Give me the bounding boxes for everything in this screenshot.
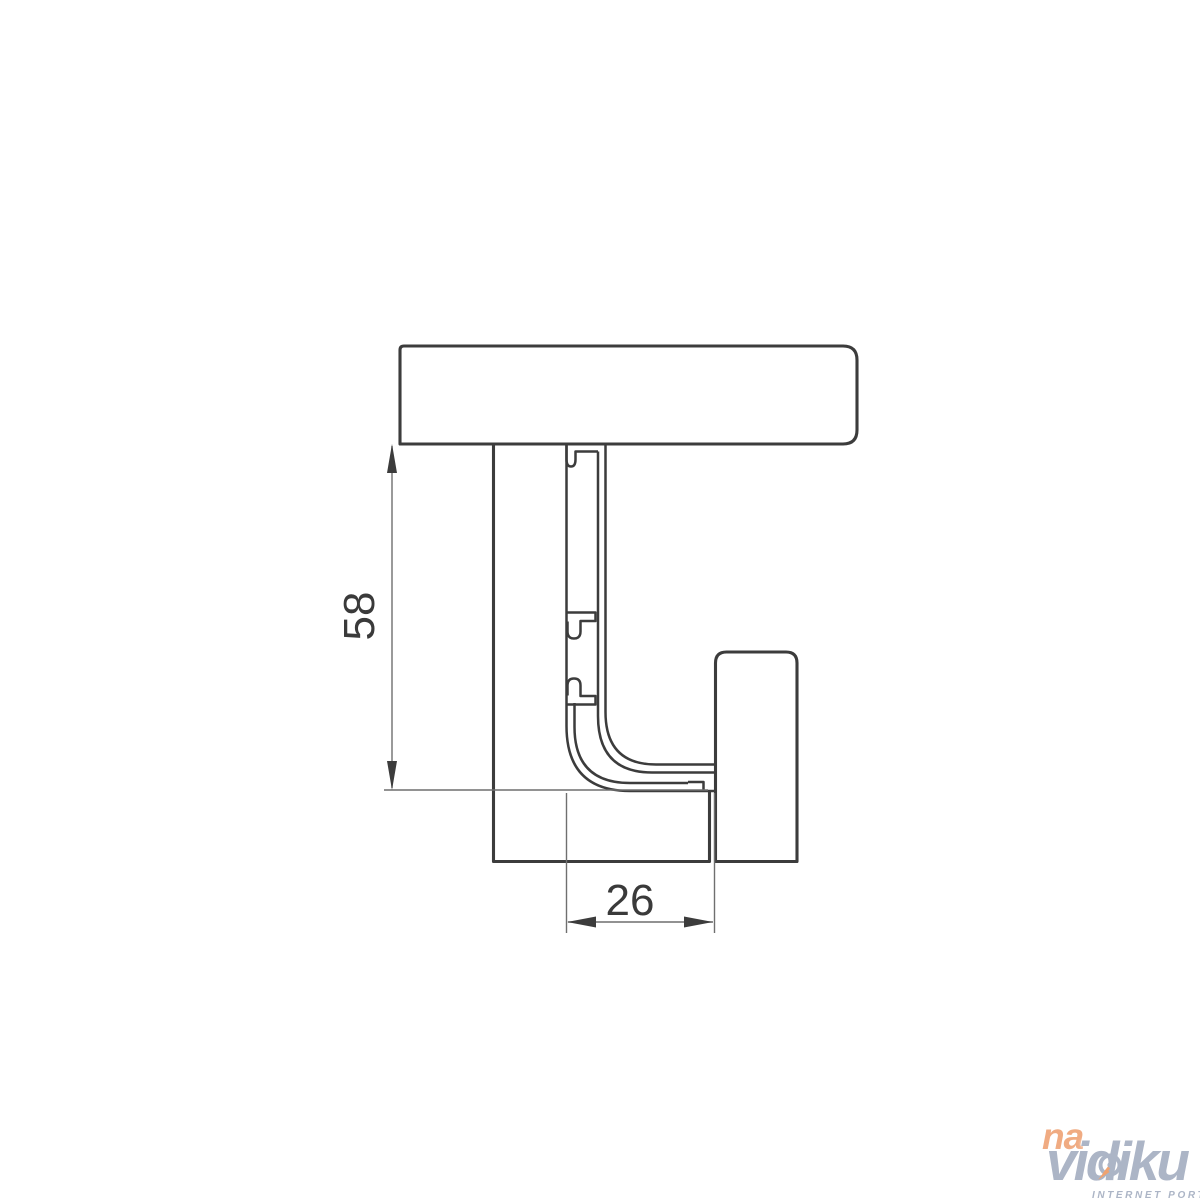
door-panel-outline [716, 652, 798, 862]
drawing-canvas: 58 26 [0, 0, 1200, 1200]
technical-drawing-svg: 58 26 [0, 0, 1200, 1200]
width-arrow-right [684, 917, 713, 928]
drawing-objects [400, 346, 857, 862]
profile-clip-lower [567, 679, 596, 705]
profile-top-pin [567, 444, 599, 467]
profile-right-wall-outer [606, 444, 715, 765]
dimension-height-58: 58 [335, 444, 708, 790]
height-dimension-value: 58 [335, 592, 384, 641]
profile-outer-wall [567, 444, 715, 791]
profile-clip-middle [567, 613, 596, 639]
countertop-outline [400, 346, 857, 444]
profile-arm-lip [688, 782, 704, 790]
cabinet-panel-outline [494, 444, 710, 862]
height-arrow-down [387, 761, 397, 790]
width-arrow-left [567, 917, 596, 928]
profile-right-wall-inner [598, 452, 715, 773]
height-arrow-up [387, 444, 397, 473]
width-dimension-value: 26 [606, 876, 655, 925]
